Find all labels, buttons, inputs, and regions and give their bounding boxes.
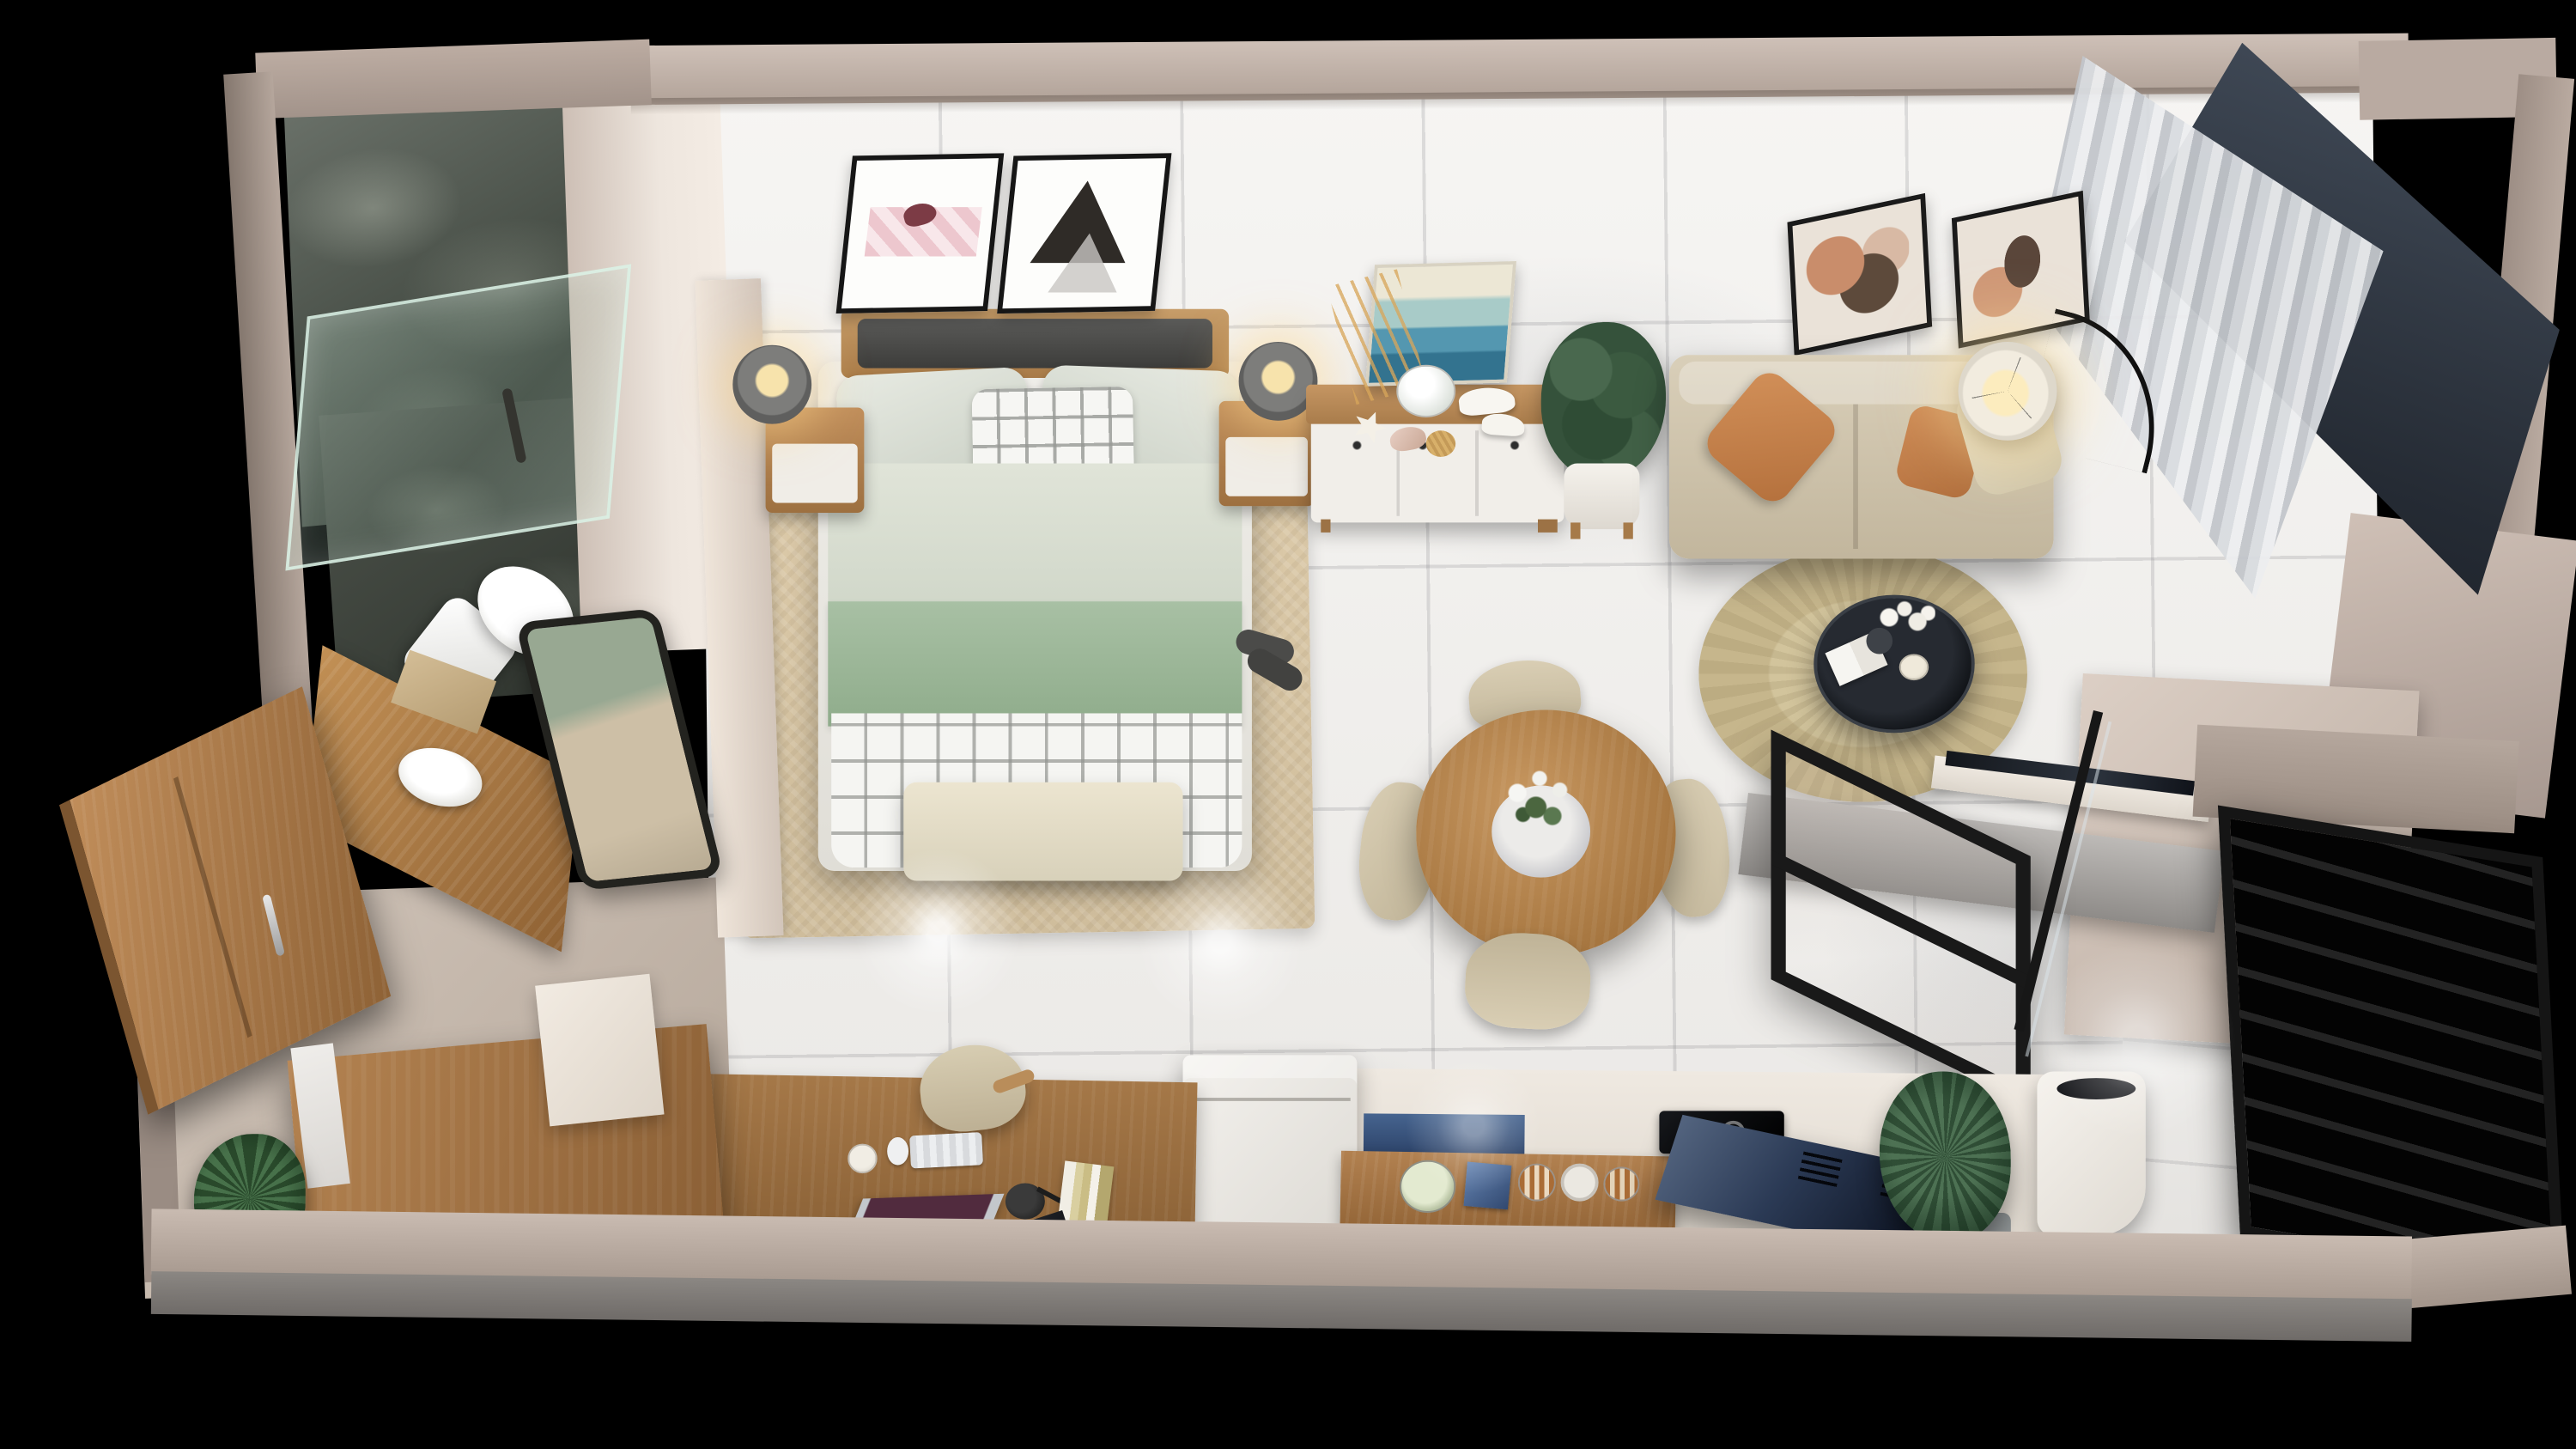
floor-lamp-spokes <box>1971 355 2044 427</box>
glass-terrarium-bowl <box>1396 365 1455 417</box>
entry-door-white <box>535 974 664 1127</box>
coffee-table-cup <box>1899 654 1929 680</box>
nightstand-right-drawer <box>1225 437 1308 496</box>
duvet-sage <box>828 464 1242 622</box>
ceiling-light-glow-4 <box>1400 1051 1547 1199</box>
desk-keyboard <box>909 1132 983 1169</box>
floorplan-stage <box>0 0 2576 1449</box>
sofa-seat-seam <box>1853 405 1858 549</box>
table-lamp-left <box>732 345 811 424</box>
ficus-pot-legs <box>1571 522 1633 539</box>
art-living-1-shapes <box>1804 222 1909 331</box>
shelf-mug-white <box>1561 1164 1599 1202</box>
coffee-table-flowers <box>1876 598 1935 641</box>
desk-books <box>1058 1160 1114 1225</box>
sideboard-legs <box>1321 520 1558 533</box>
dining-centerpiece-flowers <box>1492 763 1583 835</box>
rope-ball-decor <box>1426 430 1455 457</box>
ficus-plant-pot <box>1564 464 1639 530</box>
desk-mouse <box>887 1137 908 1166</box>
fridge-door-seam <box>1189 1098 1351 1101</box>
art-bed-right-triangle-light <box>1048 234 1124 293</box>
nightstand-left-drawer <box>772 444 857 503</box>
blanket-green <box>828 601 1242 726</box>
desk-mug <box>848 1144 877 1173</box>
ceiling-light-glow-1 <box>848 842 1028 1022</box>
headboard-panel <box>858 319 1212 368</box>
shelf-mug-striped-2 <box>1603 1166 1639 1201</box>
render-canvas <box>0 0 2576 1449</box>
staircase-black <box>2218 806 2565 1289</box>
ceiling-light-glow-2 <box>1130 851 1310 1032</box>
ceiling-light-glow-3 <box>2031 934 2245 1148</box>
art-living-2-shapes <box>1968 219 2067 323</box>
wall-top-left-block <box>255 40 652 119</box>
